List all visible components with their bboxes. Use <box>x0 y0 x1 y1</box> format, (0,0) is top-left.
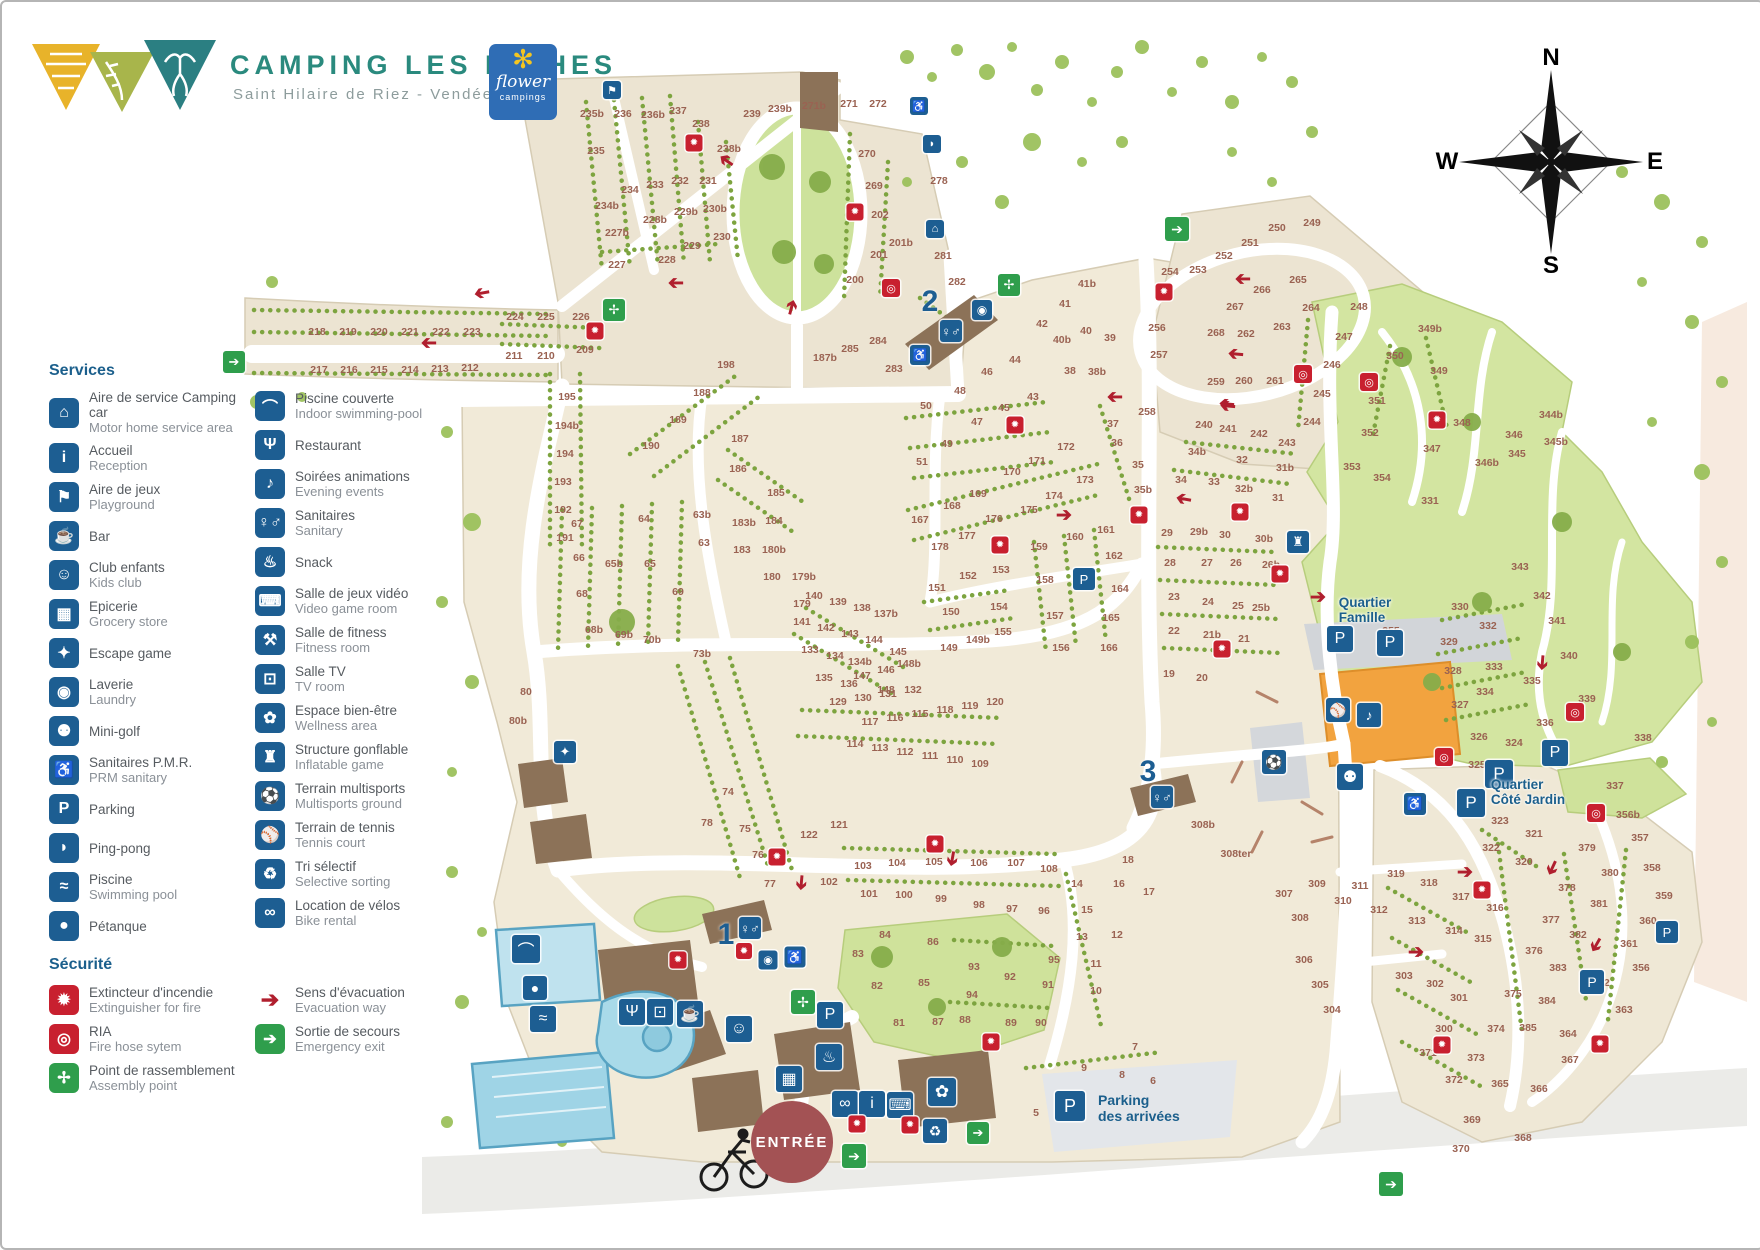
sanitary-block-number: 3 <box>1140 755 1157 789</box>
zone-label: QuartierFamille <box>1339 595 1392 625</box>
entrance-label: ENTRÉE <box>751 1101 833 1183</box>
parking-arrivees-label: Parkingdes arrivées <box>1098 1092 1180 1124</box>
sanitary-block-number: 2 <box>922 285 939 319</box>
sanitary-block-number: 1 <box>718 918 735 952</box>
camping-map-page: CAMPING LES BICHES Saint Hilaire de Riez… <box>0 0 1760 1250</box>
map-label-layer: 123QuartierFamilleQuartierCôté JardinPar… <box>2 2 1760 1248</box>
zone-label: QuartierCôté Jardin <box>1491 777 1565 807</box>
